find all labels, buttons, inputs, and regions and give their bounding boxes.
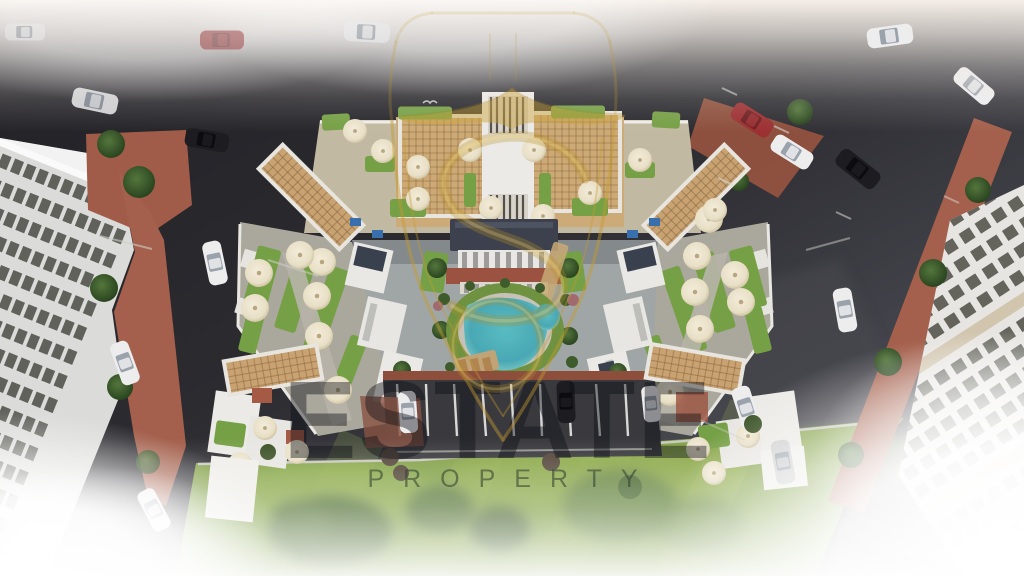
svg-text:ESTATE: ESTATE [283,359,713,482]
svg-text:PROPERTY: PROPERTY [367,465,656,493]
